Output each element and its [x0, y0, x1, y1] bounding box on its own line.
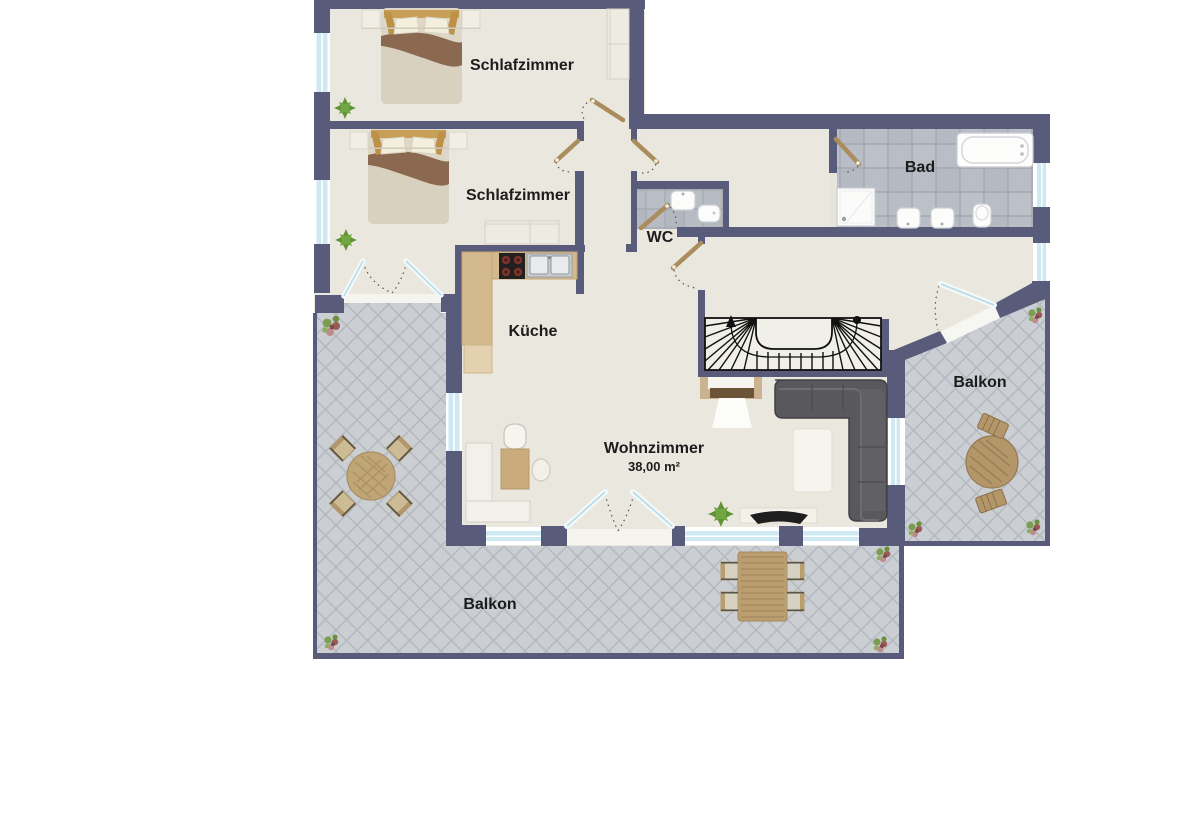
svg-text:Küche: Küche [509, 323, 558, 340]
svg-text:Schlafzimmer: Schlafzimmer [466, 187, 570, 204]
svg-text:WC: WC [647, 229, 674, 246]
svg-text:Balkon: Balkon [463, 596, 516, 613]
svg-text:38,00 m²: 38,00 m² [628, 459, 681, 474]
svg-text:Wohnzimmer: Wohnzimmer [604, 440, 704, 457]
svg-text:Balkon: Balkon [953, 374, 1006, 391]
svg-text:Schlafzimmer: Schlafzimmer [470, 57, 574, 74]
svg-text:Bad: Bad [905, 159, 935, 176]
